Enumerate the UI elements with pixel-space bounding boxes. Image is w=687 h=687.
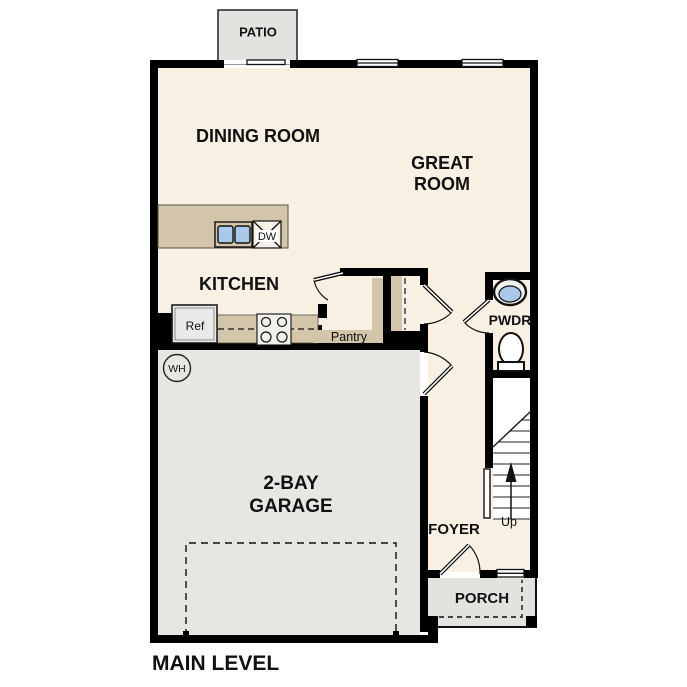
stairs-railing — [484, 469, 490, 518]
foyer-bottom-wall-a — [420, 570, 440, 578]
pantry-door-stub — [318, 304, 327, 318]
window-top-left-icon — [357, 60, 398, 67]
foyer-bottom-wall-b — [480, 570, 497, 578]
pantry-shelf-side — [372, 278, 383, 330]
hall-wall-b — [420, 324, 428, 352]
dining-room-label: DINING ROOM — [196, 126, 320, 146]
hall-wall-a — [420, 276, 428, 285]
great-room-label-line1: GREAT — [411, 153, 473, 173]
stove-icon — [257, 314, 291, 345]
floor-plan-page: DW Ref Pantry — [0, 0, 687, 687]
porch-label: PORCH — [455, 590, 509, 607]
refrigerator-label: Ref — [186, 319, 205, 333]
stairs-up-label: Up — [501, 515, 517, 529]
powder-left-wall-b — [485, 333, 493, 370]
floor-plan-svg: DW Ref Pantry — [0, 0, 687, 687]
porch-post — [526, 616, 537, 627]
dishwasher-label: DW — [258, 231, 277, 243]
powder-left-wall-a — [485, 280, 493, 300]
page-title: MAIN LEVEL — [152, 652, 279, 675]
foyer-label: FOYER — [428, 521, 480, 538]
patio-label: PATIO — [239, 25, 277, 40]
window-foyer-icon — [497, 570, 524, 578]
refrigerator: Ref — [172, 305, 217, 343]
kitchen-label: KITCHEN — [199, 274, 279, 294]
closet-left-wall — [383, 272, 391, 332]
left-wall — [150, 60, 158, 643]
powder-sink-icon — [494, 279, 526, 305]
closet-shelf — [391, 276, 402, 331]
water-heater-label: WH — [168, 363, 186, 375]
window-top-right-icon — [462, 60, 503, 67]
porch-wall-stub — [428, 616, 438, 635]
great-room-label-line2: ROOM — [414, 174, 470, 194]
stairs-left-wall — [485, 378, 493, 468]
garage-bottom-wall — [150, 635, 438, 643]
powder-label: PWDR — [489, 312, 532, 328]
dishwasher-icon: DW — [253, 221, 281, 248]
foyer-bottom-wall-c — [524, 570, 538, 578]
garage-label-line1: 2-BAY — [263, 473, 319, 494]
garage-label-line2: GARAGE — [249, 496, 332, 517]
pantry-label: Pantry — [331, 330, 368, 344]
patio-sliding-door-icon — [247, 60, 285, 65]
garage-right-wall — [420, 396, 428, 632]
toilet-icon — [498, 333, 524, 371]
